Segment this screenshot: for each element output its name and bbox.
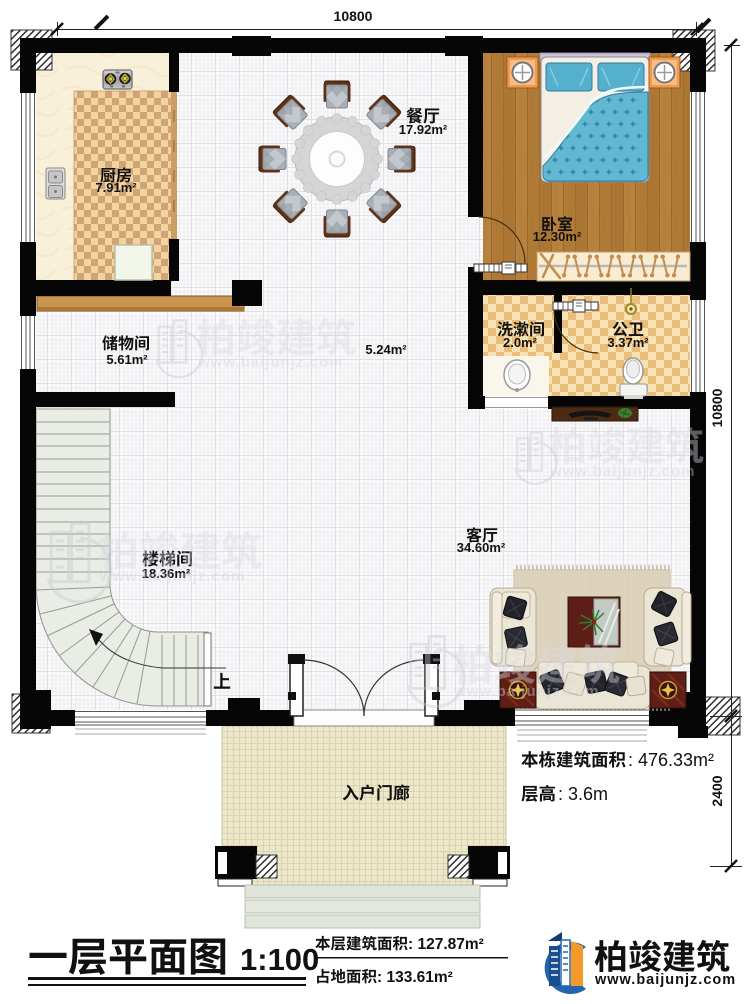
svg-text:3.37m²: 3.37m²	[607, 335, 649, 350]
svg-text:5.24m²: 5.24m²	[365, 342, 407, 357]
svg-text:10800: 10800	[334, 8, 373, 24]
svg-text:www.baijunjz.com: www.baijunjz.com	[594, 972, 736, 988]
svg-text:2.0m²: 2.0m²	[503, 335, 538, 350]
svg-text:www.baijunjz.com: www.baijunjz.com	[99, 568, 245, 585]
svg-text:: 127.87m²: : 127.87m²	[408, 936, 484, 953]
svg-text:34.60m²: 34.60m²	[457, 540, 506, 555]
svg-text:: 133.61m²: : 133.61m²	[377, 969, 453, 986]
svg-text:www.baijunjz.com: www.baijunjz.com	[197, 354, 343, 371]
svg-text:2400: 2400	[709, 775, 725, 806]
svg-text:: 476.33m²: : 476.33m²	[628, 750, 714, 770]
svg-text:17.92m²: 17.92m²	[399, 122, 448, 137]
svg-text:10800: 10800	[709, 388, 725, 427]
svg-text:1:100: 1:100	[240, 942, 319, 977]
svg-text:12.30m²: 12.30m²	[533, 229, 582, 244]
svg-text:www.baijunjz.com: www.baijunjz.com	[453, 683, 599, 700]
svg-text:www.baijunjz.com: www.baijunjz.com	[549, 463, 695, 480]
svg-text:7.91m²: 7.91m²	[95, 180, 137, 195]
svg-text:: 3.6m: : 3.6m	[558, 784, 608, 804]
svg-text:5.61m²: 5.61m²	[106, 352, 148, 367]
